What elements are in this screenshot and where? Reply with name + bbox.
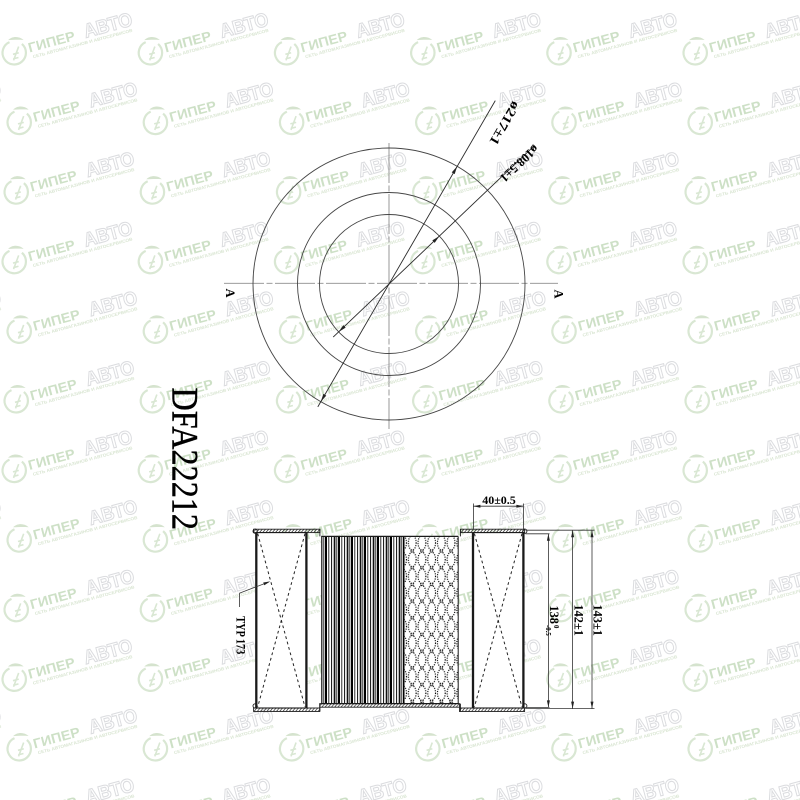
svg-text:138: 138: [547, 606, 561, 624]
svg-text:40±0.5: 40±0.5: [482, 493, 516, 507]
svg-text:DFA22212: DFA22212: [164, 388, 205, 531]
svg-text:-0.5: -0.5: [544, 625, 551, 636]
svg-text:TYP 173: TYP 173: [233, 616, 248, 654]
svg-text:0: 0: [552, 625, 559, 629]
svg-text:A: A: [552, 290, 566, 299]
svg-text:143±1: 143±1: [591, 605, 605, 636]
svg-text:A: A: [223, 289, 237, 298]
svg-text:142±1: 142±1: [571, 605, 585, 636]
